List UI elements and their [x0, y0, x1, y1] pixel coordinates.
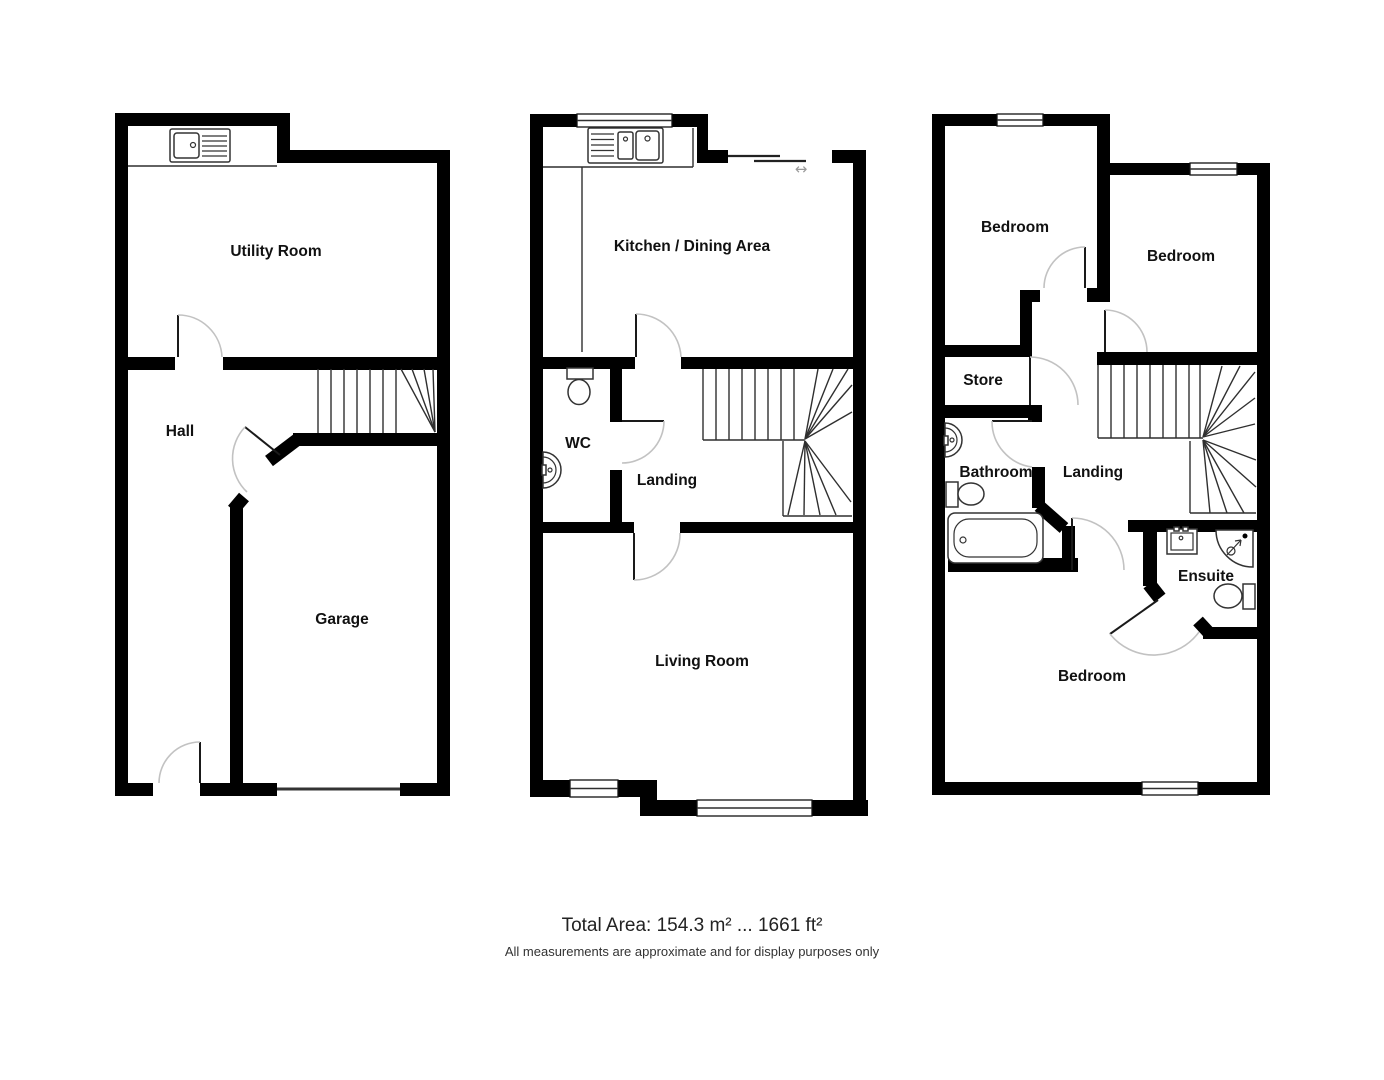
utility-room-label: Utility Room — [230, 243, 321, 260]
bathroom-toilet — [946, 482, 984, 507]
first-floor-walls — [530, 114, 868, 816]
sliding-patio-door: ↔ — [728, 156, 807, 178]
bedroom-top-left-label: Bedroom — [981, 219, 1049, 236]
floorplan-drawing: Utility Room Hall Garage — [0, 0, 1384, 1080]
bedroom-bottom-label: Bedroom — [1058, 668, 1126, 685]
kitchen-dining-label: Kitchen / Dining Area — [614, 238, 771, 255]
garage-label: Garage — [315, 611, 369, 628]
floorplan-page: Utility Room Hall Garage — [0, 0, 1384, 1080]
total-area-text: Total Area: 154.3 m² ... 1661 ft² — [562, 915, 823, 936]
window — [997, 114, 1043, 126]
bedroom-top-right-label: Bedroom — [1147, 248, 1215, 265]
disclaimer-text: All measurements are approximate and for… — [505, 944, 880, 959]
ground-floor-walls — [115, 113, 450, 796]
window — [697, 800, 812, 816]
second-floor-plan: Bedroom Bedroom Store Bathroom Landing E… — [932, 114, 1270, 795]
ensuite-label: Ensuite — [1178, 568, 1234, 585]
living-room-door — [634, 533, 680, 580]
wc-toilet — [567, 368, 593, 405]
window — [1190, 163, 1237, 175]
bathtub — [948, 513, 1043, 563]
window — [570, 780, 618, 797]
bathroom-door — [992, 421, 1032, 467]
hall-label: Hall — [166, 423, 194, 440]
kitchen-sink — [588, 128, 663, 163]
sliding-door-arrow-icon: ↔ — [795, 160, 808, 178]
bathroom-basin — [944, 423, 962, 457]
second-staircase — [1098, 365, 1256, 513]
diagonal-wall-stub — [1149, 584, 1160, 598]
bedroom-bottom-door — [1072, 518, 1124, 570]
ensuite-toilet — [1214, 584, 1255, 609]
ensuite-door — [1110, 600, 1199, 655]
footer: Total Area: 154.3 m² ... 1661 ft² All me… — [505, 915, 880, 959]
wc-door — [622, 421, 664, 463]
bathroom-label: Bathroom — [959, 464, 1032, 481]
store-door — [1030, 357, 1078, 405]
utility-room-door — [178, 315, 222, 357]
utility-sink — [128, 129, 277, 166]
shower — [1216, 530, 1253, 567]
wc-basin — [542, 452, 561, 488]
ground-staircase — [318, 369, 435, 433]
window — [577, 114, 672, 127]
wc-label: WC — [565, 435, 591, 452]
living-room-label: Living Room — [655, 653, 749, 670]
first-floor-plan: ↔ — [530, 114, 868, 816]
front-door — [159, 742, 200, 783]
bedroom-top-right-door — [1105, 310, 1147, 352]
diagonal-wall-stub — [233, 497, 244, 510]
window — [1142, 782, 1198, 795]
bedroom-top-left-door — [1044, 247, 1085, 288]
diagonal-wall-stub — [1198, 621, 1210, 634]
second-landing-label: Landing — [1063, 464, 1123, 481]
kitchen-door — [636, 314, 681, 357]
first-staircase — [703, 369, 852, 516]
ground-floor-plan: Utility Room Hall Garage — [115, 113, 450, 796]
first-landing-label: Landing — [637, 472, 697, 489]
store-label: Store — [963, 372, 1003, 389]
ensuite-sink — [1167, 527, 1197, 554]
